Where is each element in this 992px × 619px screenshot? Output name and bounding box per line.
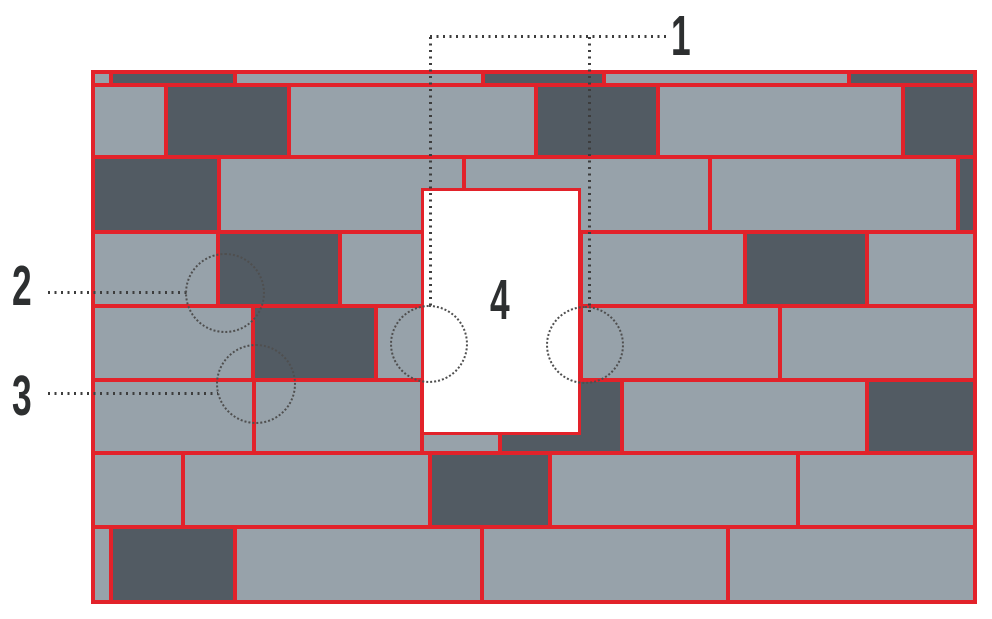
stone-block-dark — [166, 85, 289, 157]
stone-block-light — [581, 232, 745, 306]
stone-block-light — [780, 306, 975, 380]
stone-block-light — [798, 453, 975, 527]
stone-block-light — [710, 157, 958, 232]
stone-block-light — [289, 85, 536, 157]
stone-block-dark — [849, 72, 975, 85]
stone-block-dark — [430, 453, 550, 527]
stone-block-light — [658, 85, 903, 157]
stone-block-light — [183, 453, 430, 527]
stone-block-light — [93, 527, 111, 602]
stone-block-light — [604, 72, 849, 85]
callout-label-3: 3 — [12, 368, 32, 425]
stone-block-light — [235, 527, 482, 602]
stone-block-dark — [867, 380, 975, 453]
stone-block-dark — [93, 157, 219, 232]
callout-label-4: 4 — [490, 272, 510, 329]
stone-block-light — [93, 453, 183, 527]
leader-line-callout-1 — [430, 35, 666, 38]
stone-block-light — [235, 72, 483, 85]
leader-line-callout-1 — [429, 37, 432, 306]
stone-block-dark — [745, 232, 867, 306]
callout-label-2: 2 — [12, 258, 32, 315]
leader-line-callout-3 — [48, 392, 218, 395]
detail-circle-callout-4 — [390, 305, 468, 383]
stone-block-light — [93, 85, 166, 157]
detail-circle-callout-3 — [216, 344, 296, 424]
leader-line-callout-2 — [48, 291, 190, 294]
stone-block-dark — [483, 72, 604, 85]
stone-block-dark — [536, 85, 658, 157]
stone-block-light — [867, 232, 975, 306]
stone-block-dark — [111, 527, 235, 602]
stone-block-light — [550, 453, 798, 527]
stone-block-light — [93, 72, 111, 85]
detail-circle-callout-4 — [546, 306, 624, 384]
callout-label-1: 1 — [671, 8, 691, 65]
masonry-wall-diagram: 1 2 3 4 — [0, 0, 992, 619]
stone-block-light — [482, 527, 728, 602]
stone-block-dark — [958, 157, 975, 232]
stone-block-light — [728, 527, 975, 602]
stone-block-dark — [903, 85, 975, 157]
detail-circle-callout-2 — [185, 253, 265, 333]
stone-block-light — [622, 380, 867, 453]
leader-line-callout-1 — [588, 37, 591, 316]
stone-block-dark — [111, 72, 235, 85]
